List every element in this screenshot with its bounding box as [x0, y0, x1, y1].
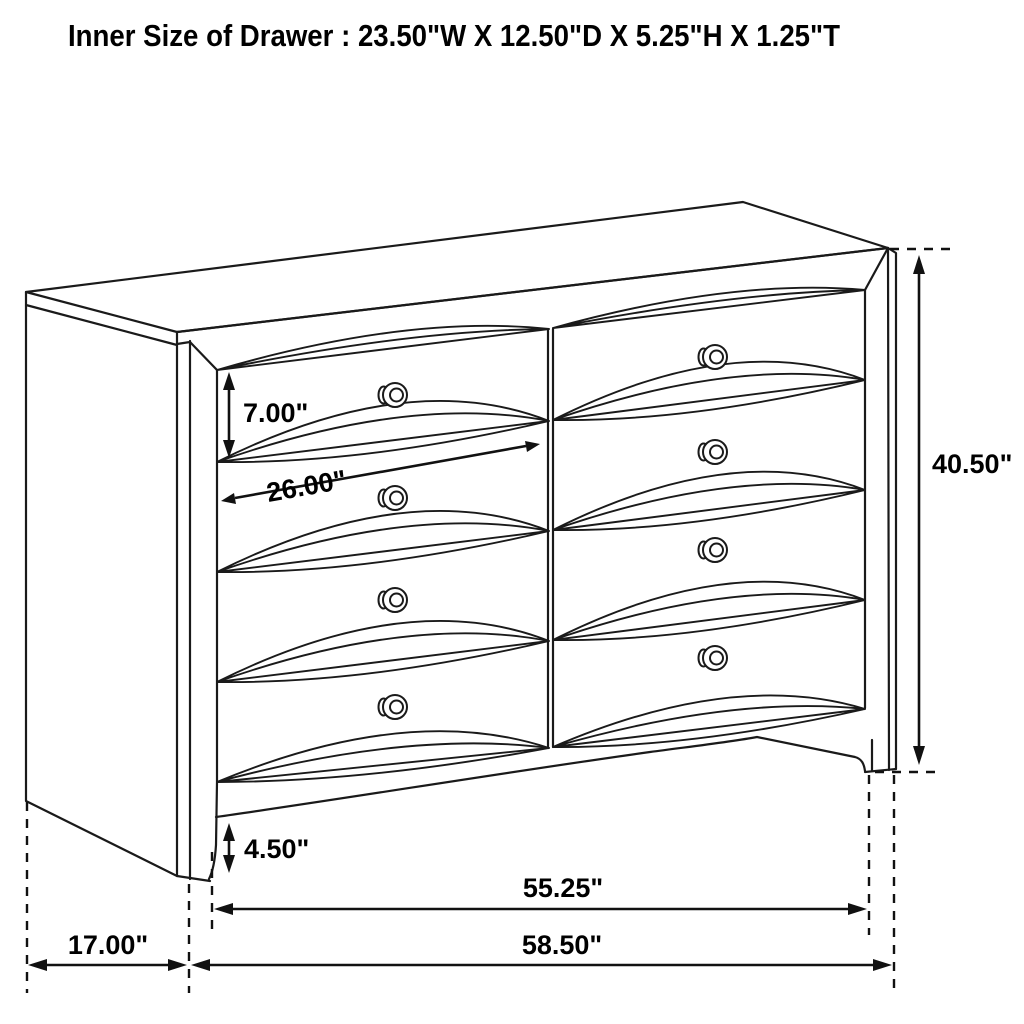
arrowhead-down	[913, 746, 925, 765]
arrowhead-right	[168, 959, 187, 971]
drawer-knob	[699, 345, 728, 369]
arrowhead-left	[214, 903, 233, 915]
top-rail-bevel-right	[865, 248, 888, 290]
dimension-label-leg-span-width: 55.25"	[523, 873, 603, 903]
dimension-label-base-height: 4.50"	[244, 834, 309, 864]
wave-top	[553, 288, 865, 328]
dimension-label-overall-width: 58.50"	[522, 930, 602, 960]
arrowhead-left	[28, 959, 47, 971]
top-rail-bevel-left	[190, 342, 217, 370]
page-title: Inner Size of Drawer : 23.50"W X 12.50"D…	[68, 18, 840, 53]
drawer-opening-left-edge	[209, 370, 217, 879]
dimension-width-between-outer-legs: 55.25"	[214, 873, 867, 915]
front-left-stile	[177, 341, 210, 881]
arrowhead-down	[223, 440, 235, 458]
drawer-knob	[699, 440, 728, 464]
arrowhead-left	[191, 959, 210, 971]
dresser-dimension-diagram-page: Inner Size of Drawer : 23.50"W X 12.50"D…	[0, 0, 1024, 1024]
wave-row1-row2	[553, 362, 865, 420]
center-drawer-divider	[548, 329, 553, 748]
dimension-overall-height: 40.50"	[913, 255, 1012, 765]
drawer-knob	[379, 383, 408, 407]
arrowhead-right	[873, 959, 892, 971]
dimension-overall-width: 58.50"	[191, 930, 892, 971]
right-corner-post	[865, 248, 896, 772]
dimension-side-depth: 17.00"	[28, 930, 187, 971]
wave-row3-row4	[553, 582, 865, 640]
wave-top	[217, 326, 549, 370]
drawer-knob	[379, 588, 408, 612]
dresser-drawing	[26, 202, 896, 881]
wave-row2-row3	[553, 472, 865, 530]
arrowhead-right	[525, 441, 540, 452]
dimension-label-drawer-width: 26.00"	[264, 464, 348, 508]
arrowhead-down	[223, 855, 235, 873]
drawer-knob	[699, 538, 728, 562]
extension-lines	[27, 249, 953, 993]
arrowhead-up	[223, 823, 235, 841]
drawer-knob	[379, 695, 408, 719]
arrowhead-right	[848, 903, 867, 915]
dresser-top-face	[26, 202, 888, 332]
arrowhead-up	[913, 255, 925, 274]
drawer-knob	[699, 646, 728, 670]
dimension-label-side-depth: 17.00"	[68, 930, 148, 960]
dresser-top-left-edge	[26, 292, 177, 345]
drawer-knob	[379, 486, 408, 510]
diagram-canvas: Inner Size of Drawer : 23.50"W X 12.50"D…	[0, 0, 1024, 1024]
wave-row3-row4	[217, 621, 549, 682]
arrowhead-left	[221, 493, 236, 504]
arrowhead-up	[223, 372, 235, 390]
dresser-left-side-panel	[26, 305, 177, 876]
wave-row2-row3	[217, 511, 549, 572]
dimension-base-to-floor-height: 4.50"	[223, 823, 309, 873]
dimension-label-drawer-height: 7.00"	[243, 398, 308, 428]
dimension-label-overall-height: 40.50"	[932, 449, 1012, 479]
wave-bottom	[553, 695, 865, 747]
